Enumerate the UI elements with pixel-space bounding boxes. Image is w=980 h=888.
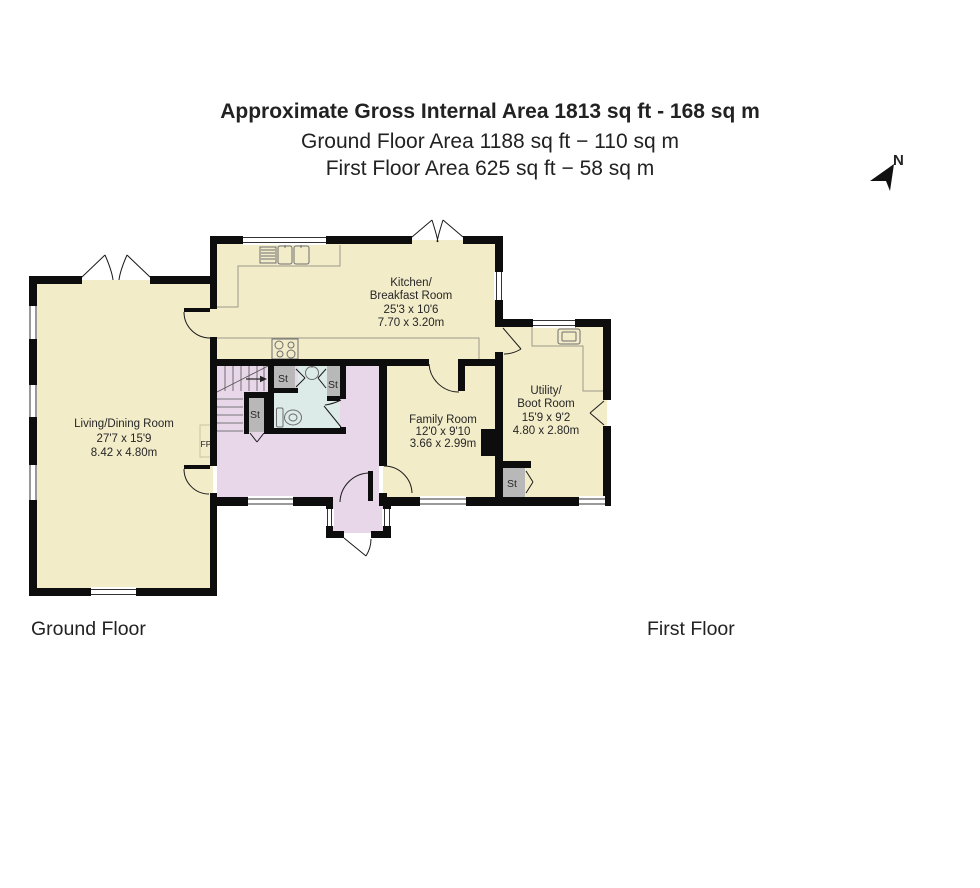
svg-text:St: St [328, 379, 338, 391]
svg-text:Ground Floor Area 1188 sq ft −: Ground Floor Area 1188 sq ft − 110 sq m [301, 130, 679, 153]
svg-text:Breakfast Room: Breakfast Room [370, 290, 452, 302]
svg-text:Family Room: Family Room [409, 414, 477, 426]
svg-text:First Floor Area 625 sq ft − 5: First Floor Area 625 sq ft − 58 sq m [326, 157, 655, 180]
svg-text:7.70 x 3.20m: 7.70 x 3.20m [378, 317, 444, 329]
svg-text:St: St [278, 373, 288, 385]
svg-text:Utility/: Utility/ [530, 385, 562, 397]
svg-text:12'0 x 9'10: 12'0 x 9'10 [416, 426, 471, 438]
svg-text:St: St [507, 478, 517, 490]
svg-text:First Floor: First Floor [647, 618, 735, 640]
svg-text:Approximate Gross Internal Are: Approximate Gross Internal Area 1813 sq … [220, 100, 760, 123]
svg-text:15'9 x 9'2: 15'9 x 9'2 [522, 412, 571, 424]
svg-text:N: N [893, 152, 904, 169]
svg-text:8.42 x 4.80m: 8.42 x 4.80m [91, 447, 157, 459]
svg-text:Boot Room: Boot Room [517, 398, 575, 410]
svg-text:4.80 x 2.80m: 4.80 x 2.80m [513, 425, 579, 437]
svg-text:St: St [250, 409, 260, 421]
svg-text:Living/Dining Room: Living/Dining Room [74, 418, 174, 430]
svg-text:Kitchen/: Kitchen/ [390, 277, 432, 289]
svg-text:Ground Floor: Ground Floor [31, 618, 146, 640]
svg-text:3.66 x 2.99m: 3.66 x 2.99m [410, 438, 476, 450]
svg-text:25'3 x 10'6: 25'3 x 10'6 [384, 304, 439, 316]
svg-text:27'7 x 15'9: 27'7 x 15'9 [97, 433, 152, 445]
